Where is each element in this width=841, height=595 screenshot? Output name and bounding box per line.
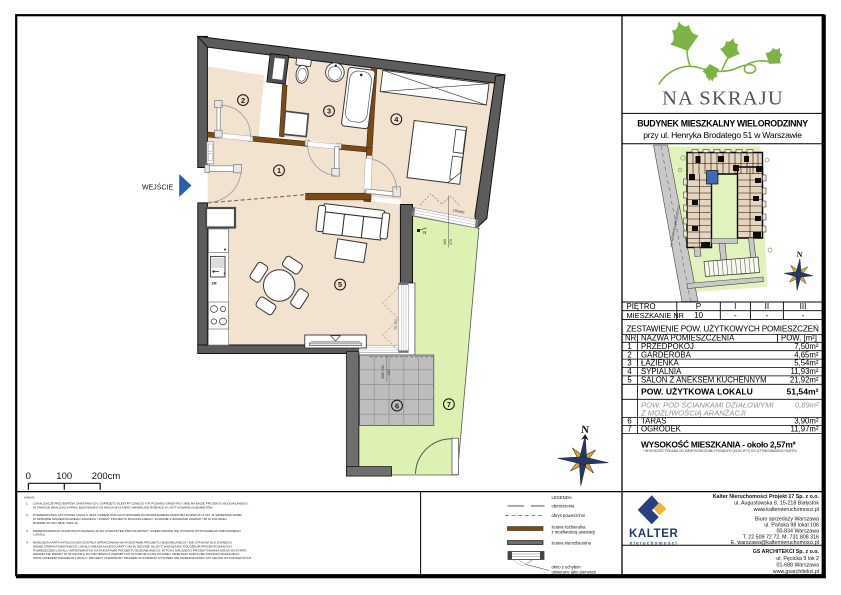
svg-text:ul. Pęcicka 9 lok 2: ul. Pęcicka 9 lok 2 (776, 556, 819, 562)
svg-text:51,54m²: 51,54m² (786, 387, 818, 397)
svg-text:PRZEDSTAWIONA NA RZUTACH ARANŻ: PRZEDSTAWIONA NA RZUTACH ARANŻACJA MA CH… (33, 528, 241, 533)
svg-text:II: II (765, 302, 770, 311)
svg-text:nieruchomości: nieruchomości (630, 540, 678, 545)
svg-text:obrys powierzchni: obrys powierzchni (552, 513, 586, 518)
svg-text:3: 3 (327, 107, 331, 116)
svg-text:7: 7 (627, 425, 631, 434)
svg-text:N: N (796, 250, 803, 259)
svg-text:230: 230 (387, 370, 391, 376)
svg-text:200cm: 200cm (92, 471, 121, 482)
svg-text:PIĘTRO: PIĘTRO (627, 302, 656, 311)
svg-text:01-688 Warszawa: 01-688 Warszawa (777, 563, 820, 569)
svg-text:TD 100: TD 100 (394, 319, 398, 330)
svg-text:-: - (734, 311, 737, 320)
svg-text:0: 0 (26, 471, 31, 482)
svg-text:ściana nierozbieralna: ściana nierozbieralna (552, 540, 592, 545)
svg-text:KALTER: KALTER (629, 528, 678, 540)
svg-text:160: 160 (443, 239, 447, 245)
svg-text:2.: 2. (26, 513, 29, 517)
svg-text:P: P (696, 302, 702, 311)
svg-text:LOKALU.: LOKALU. (33, 533, 46, 537)
svg-text:MIESZKANIE NR: MIESZKANIE NR (627, 311, 685, 320)
svg-text:0,89m²: 0,89m² (795, 400, 819, 409)
svg-text:* WYSOKOŚĆ PODANA OD NIEWYKOŃC: * WYSOKOŚĆ PODANA OD NIEWYKOŃCZONEJ POSA… (643, 448, 798, 453)
svg-text:2: 2 (241, 96, 245, 105)
svg-text:LEGENDA:: LEGENDA: (552, 495, 573, 500)
svg-text:7: 7 (447, 400, 451, 409)
svg-text:WYSOKOŚĆ MIESZKANIA - około 2,: WYSOKOŚĆ MIESZKANIA - około 2,57m* (641, 438, 797, 449)
svg-text:ZM: ZM (212, 282, 217, 286)
svg-text:1: 1 (277, 166, 281, 175)
svg-text:Kalter Nieruchomości Projekt 1: Kalter Nieruchomości Projekt 17 Sp. z o.… (713, 494, 820, 500)
svg-text:W TRAKCIE REALIZACJI PRAC BUDO: W TRAKCIE REALIZACJI PRAC BUDOWLANYCH MO… (33, 504, 213, 509)
svg-text:WEJŚCIE: WEJŚCIE (142, 183, 174, 192)
svg-text:OPISU PREZENTOWANEGO LOKALU. P: OPISU PREZENTOWANEGO LOKALU. PROJEKT CHR… (33, 555, 252, 560)
svg-text:BUDYNEK MIESZKALNY WIELORODZIN: BUDYNEK MIESZKALNY WIELORODZINNY (637, 119, 808, 129)
svg-text:5: 5 (338, 280, 342, 289)
svg-text:Z MOŻLIWOŚCIĄ ARANŻACJI: Z MOŻLIWOŚCIĄ ARANŻACJI (640, 409, 747, 418)
svg-text:3.: 3. (26, 529, 29, 533)
svg-text:I: I (734, 302, 736, 311)
svg-text:obmierzenia: obmierzenia (552, 504, 575, 509)
svg-text:10: 10 (694, 311, 704, 320)
svg-text:POW. UŻYTKOWA LOKALU: POW. UŻYTKOWA LOKALU (641, 387, 753, 397)
svg-text:www.kalternieruchomosci.pl: www.kalternieruchomosci.pl (754, 507, 819, 513)
svg-text:1.: 1. (26, 502, 29, 506)
svg-text:www.gsarchitekci.pl: www.gsarchitekci.pl (773, 569, 819, 575)
svg-text:E. warszawa@kalternieruchomosc: E. warszawa@kalternieruchomosci.pl (731, 540, 819, 546)
svg-text:ZESTAWIENIE POW. UŻYTKOWYCH PO: ZESTAWIENIE POW. UŻYTKOWYCH POMIESZCZEŃ (626, 324, 819, 334)
svg-text:-: - (802, 311, 805, 320)
svg-text:III: III (800, 302, 807, 311)
svg-text:-: - (766, 311, 769, 320)
svg-text:GS ARCHITEKCI Sp. z o.o.: GS ARCHITEKCI Sp. z o.o. (753, 549, 820, 555)
svg-text:ul. Augustowska 8, 15-218 Biał: ul. Augustowska 8, 15-218 Białystok (734, 501, 819, 507)
svg-text:NA SKRAJU: NA SKRAJU (662, 88, 784, 110)
svg-text:11,97m²: 11,97m² (790, 425, 818, 434)
svg-text:6: 6 (395, 401, 399, 410)
svg-text:NORMIE PN-ISO 9836: 2015-12.: NORMIE PN-ISO 9836: 2015-12. (33, 521, 79, 525)
svg-text:100: 100 (56, 471, 72, 482)
svg-text:SALON Z ANEKSEM KUCHENNYM: SALON Z ANEKSEM KUCHENNYM (641, 376, 767, 385)
svg-text:OGRÓDEK: OGRÓDEK (641, 425, 682, 434)
svg-text:108+194: 108+194 (381, 365, 385, 379)
svg-text:21,92m²: 21,92m² (790, 376, 819, 385)
svg-text:170: 170 (449, 239, 453, 245)
svg-text:UWAGI:: UWAGI: (24, 496, 35, 500)
svg-text:z możliwością aranżacji: z możliwością aranżacji (552, 529, 596, 534)
svg-text:otwierane jako pierwsze: otwierane jako pierwsze (552, 569, 597, 574)
svg-text:4.: 4. (26, 541, 29, 545)
svg-text:5: 5 (627, 376, 632, 385)
svg-text:przy ul. Henryka Brodatego 51: przy ul. Henryka Brodatego 51 w Warszawi… (643, 130, 802, 140)
